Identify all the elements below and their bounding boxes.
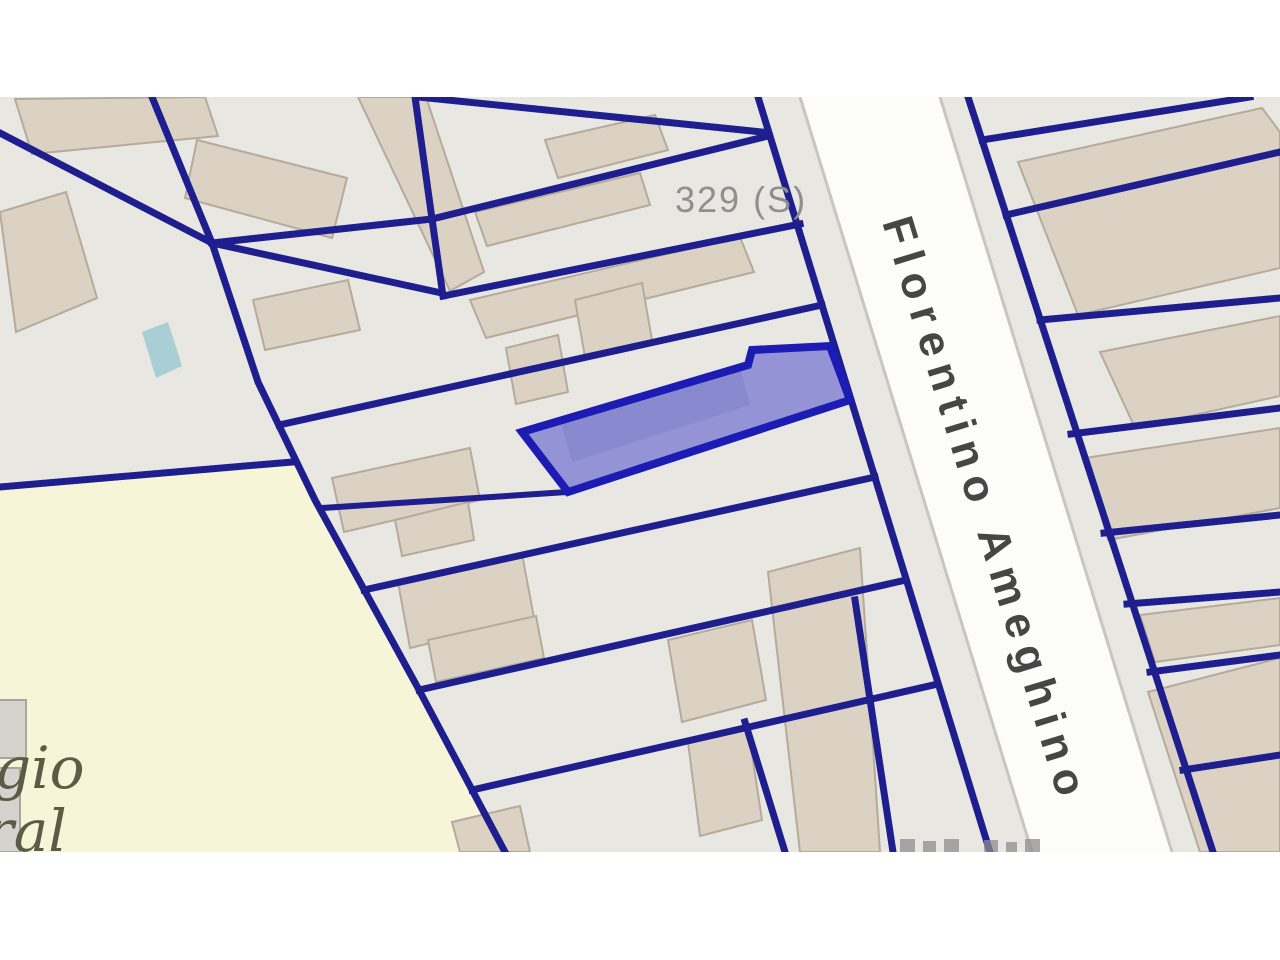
parcel-number-label: 329 (S) <box>675 179 807 220</box>
top-margin <box>0 0 1280 97</box>
map-screenshot: 329 (S) Florentino Ameghino gio ral <box>0 0 1280 960</box>
landmark-label-line2: ral <box>0 797 67 852</box>
bottom-margin <box>0 852 1280 960</box>
landmark-label-line1: gio <box>0 734 85 802</box>
map-wrap: 329 (S) Florentino Ameghino gio ral <box>0 97 1280 852</box>
map-canvas[interactable]: 329 (S) Florentino Ameghino gio ral <box>0 97 1280 852</box>
